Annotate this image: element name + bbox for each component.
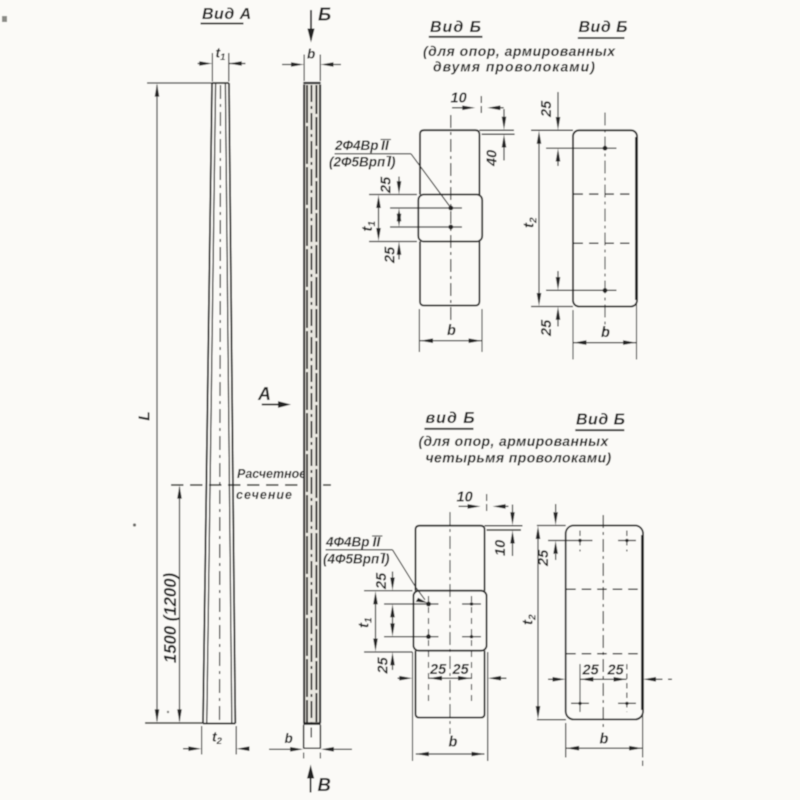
svg-text:b: b [601, 325, 610, 341]
svg-text:10: 10 [457, 490, 473, 506]
svg-text:b: b [449, 735, 458, 751]
svg-text:25: 25 [376, 656, 392, 674]
svg-text:А: А [257, 384, 271, 404]
svg-text:Вид Б: Вид Б [430, 19, 482, 36]
svg-text:4Ф4Вр: 4Ф4Вр [325, 535, 370, 550]
svg-text:10: 10 [493, 540, 509, 556]
svg-text:Расчетное: Расчетное [237, 467, 306, 481]
svg-text:2Ф4Вр: 2Ф4Вр [334, 138, 379, 153]
svg-text:b: b [447, 323, 456, 339]
svg-text:b: b [600, 732, 609, 748]
svg-text:25: 25 [429, 662, 447, 678]
svg-text:Б: Б [318, 4, 331, 25]
svg-text:(для опор, армированных: (для опор, армированных [419, 433, 610, 449]
svg-text:40: 40 [485, 150, 501, 167]
svg-text:25: 25 [539, 319, 555, 337]
svg-text:I): I) [381, 551, 390, 567]
svg-text:вид Б: вид Б [426, 410, 476, 427]
svg-text:двумя проволоками): двумя проволоками) [433, 59, 596, 75]
svg-text:25: 25 [452, 662, 470, 678]
svg-text:25: 25 [383, 246, 399, 264]
svg-text:Вид Б: Вид Б [576, 412, 626, 429]
svg-text:(для опор, армированных: (для опор, армированных [423, 43, 616, 59]
svg-text:четырьмя проволоками): четырьмя проволоками) [426, 450, 612, 466]
svg-text:сечение: сечение [236, 488, 293, 502]
svg-text:(2Ф5Врп: (2Ф5Врп [329, 155, 386, 170]
svg-text:25: 25 [539, 100, 555, 118]
svg-text:b: b [285, 731, 293, 746]
svg-text:b: b [307, 47, 315, 62]
svg-text:Вид А: Вид А [202, 6, 252, 23]
svg-text:В: В [318, 774, 331, 795]
svg-text:L: L [137, 411, 154, 420]
svg-text:I): I) [387, 154, 396, 170]
svg-text:25: 25 [374, 572, 390, 590]
svg-text:25: 25 [582, 663, 600, 679]
svg-text:1500 (1200): 1500 (1200) [160, 573, 181, 663]
svg-text:25: 25 [607, 663, 625, 679]
svg-text:25: 25 [379, 176, 395, 194]
svg-text:(4Ф5Врп: (4Ф5Врп [323, 552, 380, 567]
svg-text:10: 10 [451, 91, 467, 107]
svg-text:Вид Б: Вид Б [579, 19, 629, 36]
